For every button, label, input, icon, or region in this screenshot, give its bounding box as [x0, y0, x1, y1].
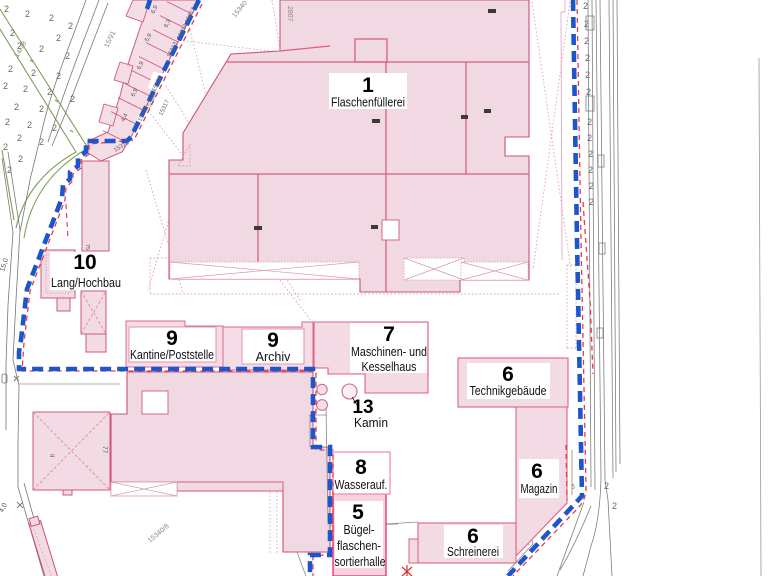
- svg-text:2: 2: [588, 165, 593, 175]
- svg-text:2: 2: [25, 9, 30, 19]
- svg-text:2: 2: [70, 94, 75, 104]
- svg-text:2: 2: [612, 501, 617, 511]
- svg-text:2807: 2807: [286, 6, 293, 22]
- svg-text:2: 2: [39, 104, 44, 114]
- svg-text:Kantine/Poststelle: Kantine/Poststelle: [130, 348, 214, 362]
- svg-text:6: 6: [502, 363, 514, 386]
- svg-text:Kamin: Kamin: [354, 416, 388, 430]
- svg-text:5: 5: [352, 501, 364, 524]
- svg-text:2: 2: [47, 87, 52, 97]
- svg-text:Maschinen- und: Maschinen- und: [351, 345, 427, 359]
- svg-text:2: 2: [68, 21, 73, 31]
- svg-text:1: 1: [362, 74, 374, 97]
- svg-text:2: 2: [18, 154, 23, 164]
- svg-text:2: 2: [7, 165, 12, 175]
- svg-text:2: 2: [39, 137, 44, 147]
- svg-text:75: 75: [84, 244, 90, 250]
- svg-text:2: 2: [589, 181, 594, 191]
- svg-text:Magazin: Magazin: [521, 482, 558, 496]
- svg-text:2: 2: [585, 53, 590, 63]
- svg-text:2: 2: [604, 481, 609, 491]
- svg-text:2: 2: [56, 33, 61, 43]
- svg-text:Archiv: Archiv: [256, 350, 291, 364]
- svg-text:Bügel-: Bügel-: [344, 523, 375, 537]
- svg-text:sortierhalle: sortierhalle: [335, 555, 386, 569]
- svg-text:8: 8: [355, 456, 367, 479]
- svg-text:2: 2: [3, 142, 8, 152]
- svg-text:2: 2: [584, 19, 589, 29]
- svg-text:2: 2: [10, 28, 15, 38]
- svg-text:2: 2: [49, 13, 54, 23]
- svg-text:Wasserauf.: Wasserauf.: [335, 478, 388, 492]
- svg-text:flaschen-: flaschen-: [337, 539, 381, 553]
- svg-text:Lang/Hochbau: Lang/Hochbau: [51, 276, 121, 290]
- svg-text:II: II: [48, 454, 55, 458]
- svg-text:Schreinerei: Schreinerei: [447, 545, 499, 559]
- svg-text:9: 9: [267, 329, 279, 352]
- svg-text:7: 7: [383, 323, 395, 346]
- svg-text:9: 9: [166, 327, 178, 350]
- svg-text:Kesselhaus: Kesselhaus: [362, 360, 417, 374]
- svg-text:2: 2: [584, 36, 589, 46]
- svg-text:2: 2: [8, 64, 13, 74]
- svg-text:5: 5: [571, 484, 575, 491]
- svg-text:Technikgebäude: Technikgebäude: [470, 384, 547, 398]
- svg-text:2: 2: [589, 197, 594, 207]
- svg-text:2: 2: [5, 117, 10, 127]
- svg-text:2: 2: [3, 81, 8, 91]
- svg-text:2: 2: [14, 102, 19, 112]
- svg-text:2: 2: [23, 84, 28, 94]
- svg-text:2: 2: [52, 123, 57, 133]
- svg-text:2: 2: [39, 44, 44, 54]
- svg-text:13: 13: [352, 397, 373, 418]
- svg-text:2: 2: [31, 68, 36, 78]
- svg-text:Flaschenfüllerei: Flaschenfüllerei: [331, 96, 405, 110]
- svg-text:2: 2: [583, 1, 588, 11]
- svg-text:2: 2: [4, 4, 9, 14]
- svg-text:2: 2: [585, 70, 590, 80]
- svg-text:2: 2: [56, 71, 61, 81]
- svg-text:2: 2: [27, 120, 32, 130]
- svg-text:2: 2: [587, 133, 592, 143]
- svg-text:77: 77: [101, 446, 108, 454]
- svg-text:6: 6: [531, 460, 543, 483]
- svg-text:2: 2: [17, 133, 22, 143]
- svg-text:2: 2: [65, 51, 70, 61]
- svg-text:2: 2: [586, 87, 591, 97]
- svg-text:10: 10: [73, 251, 96, 274]
- svg-text:2: 2: [588, 149, 593, 159]
- svg-text:2: 2: [587, 117, 592, 127]
